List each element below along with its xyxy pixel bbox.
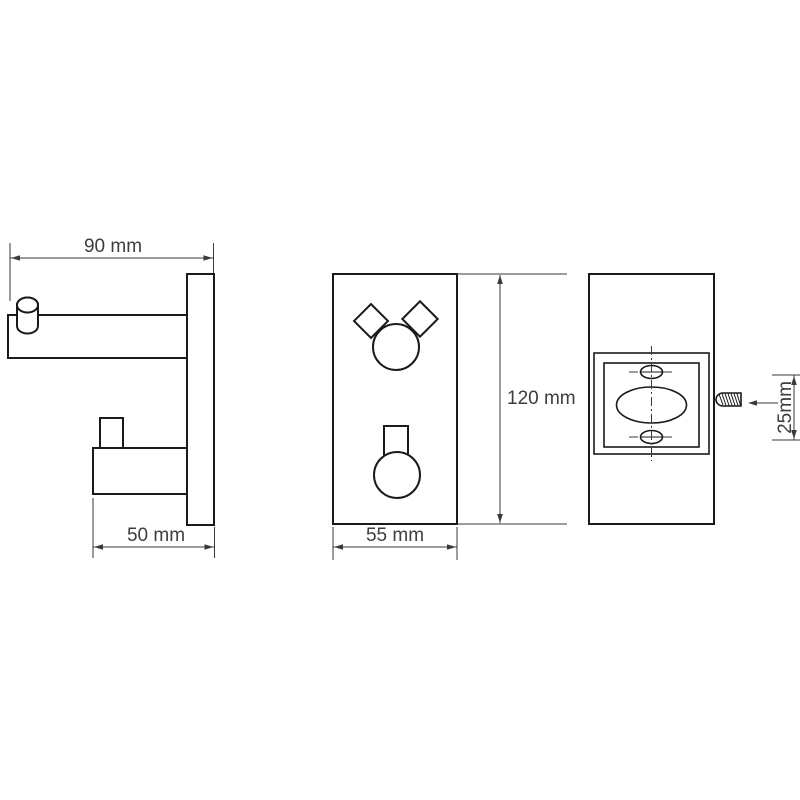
- bottom-hook-knob: [374, 452, 420, 498]
- wall-plate-side: [187, 274, 214, 525]
- top-hook-peg-top: [17, 298, 38, 313]
- bottom-hook-arm: [93, 448, 187, 494]
- side-view: [8, 274, 214, 525]
- dimension-label-25mm: 25mm: [775, 381, 796, 434]
- mounting-screw: [716, 393, 778, 406]
- dimension-55mm: 55 mm: [333, 525, 457, 560]
- dimension-drawing: 90 mm 50 mm 55 mm 120 mm 25mm: [0, 0, 800, 800]
- dimension-90mm: 90 mm: [10, 236, 214, 301]
- screw-direction-arrow: [748, 400, 778, 406]
- front-view: [333, 274, 457, 524]
- dimension-label-55mm: 55 mm: [366, 525, 424, 546]
- top-hook-knob: [373, 324, 419, 370]
- back-view: [589, 274, 714, 524]
- dimension-25mm: 25mm: [772, 375, 800, 440]
- dimension-label-120mm: 120 mm: [507, 388, 576, 409]
- technical-drawing-canvas: 90 mm 50 mm 55 mm 120 mm 25mm: [0, 0, 800, 800]
- dimension-label-50mm: 50 mm: [127, 525, 185, 546]
- dimension-label-90mm: 90 mm: [84, 236, 142, 257]
- dimension-120mm: 120 mm: [457, 274, 576, 524]
- bottom-hook-peg: [100, 418, 123, 448]
